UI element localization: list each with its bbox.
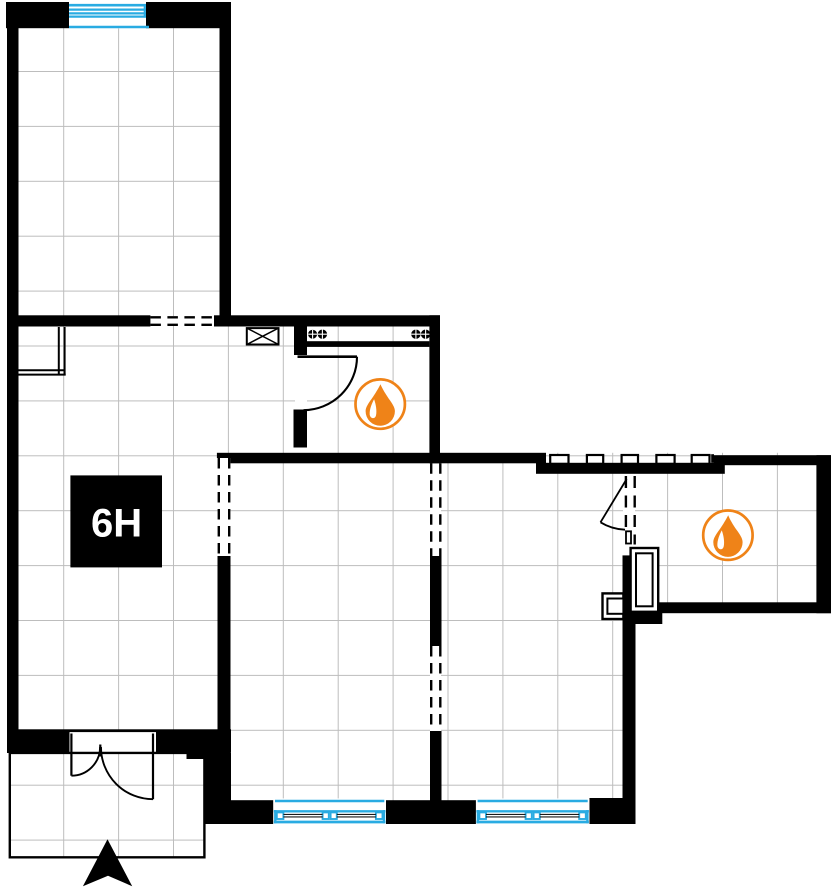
svg-text:6H: 6H xyxy=(91,502,142,546)
